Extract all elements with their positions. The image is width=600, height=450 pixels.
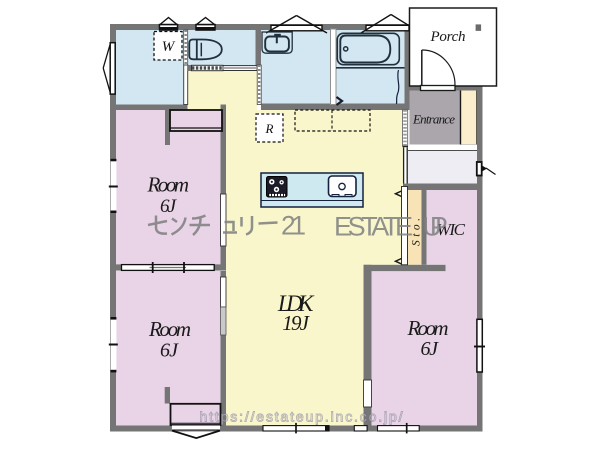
svg-text:19J: 19J — [282, 311, 310, 335]
svg-text:Room: Room — [147, 173, 190, 197]
svg-text:Porch: Porch — [430, 29, 466, 45]
svg-text:https://estateup.inc.co.jp/: https://estateup.inc.co.jp/ — [200, 409, 403, 425]
svg-text:6J: 6J — [421, 338, 440, 360]
svg-text:Entrance: Entrance — [412, 112, 455, 127]
svg-text:Room: Room — [148, 317, 191, 341]
svg-text:6J: 6J — [160, 340, 179, 362]
svg-text:R: R — [265, 121, 274, 136]
svg-text:6J: 6J — [160, 196, 178, 217]
svg-text:Room: Room — [407, 316, 449, 340]
svg-text:21: 21 — [281, 211, 306, 241]
svg-text:W: W — [162, 39, 176, 55]
svg-text:ESTATE: ESTATE — [334, 212, 413, 242]
svg-text:UP: UP — [422, 212, 448, 242]
